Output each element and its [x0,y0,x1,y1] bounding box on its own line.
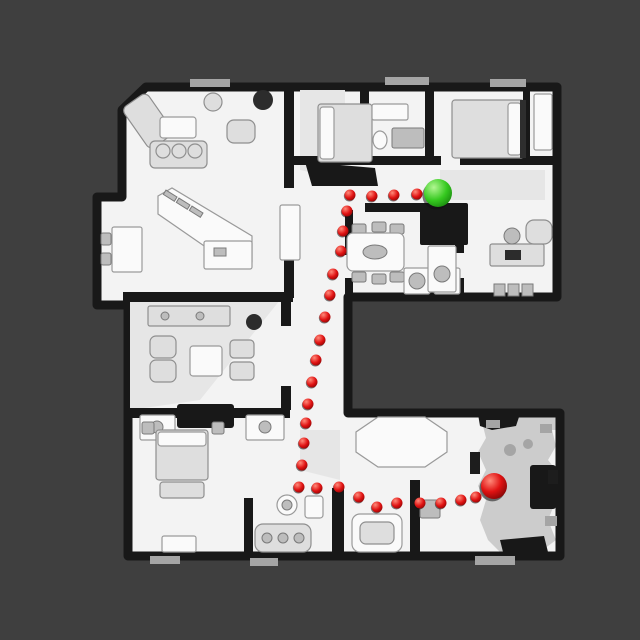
nightstand [212,422,224,434]
dresser [162,536,196,552]
side-table [190,346,222,376]
waypoint-23 [392,498,403,509]
waypoint-24 [415,498,426,509]
centerpiece [363,245,387,259]
waypoint-17 [297,460,308,471]
shower [392,128,424,148]
bedroom-a-furniture [318,104,372,162]
nightstand [142,422,154,434]
waypoint-2 [389,190,400,201]
bed-b-pillows [508,103,521,155]
double-vanity [372,104,408,120]
armchair [150,360,176,382]
toilet [373,131,387,149]
coffee-table [160,117,196,138]
waypoint-1 [412,189,423,200]
chair [101,233,111,245]
goal-marker [481,473,507,499]
start-marker [424,179,452,207]
waypoint-12 [311,355,322,366]
laptop [505,250,521,260]
round-ottoman [204,93,222,111]
waypoint-13 [307,377,318,388]
floorplan-svg [0,0,640,640]
waypoint-5 [342,206,353,217]
kitchen-island [204,241,252,269]
closet [534,94,552,150]
waypoint-26 [456,495,467,506]
waypoint-25 [436,498,447,509]
waypoint-15 [301,418,312,429]
waypoint-27 [471,492,482,503]
desk-chair [504,228,520,244]
waypoint-8 [328,269,339,280]
bathtub-basin [360,522,394,544]
office-armchair [526,220,552,244]
waypoint-9 [325,290,336,301]
armchair [227,120,255,143]
waypoint-10 [320,312,331,323]
ottoman [230,340,254,358]
waypoint-7 [336,246,347,257]
hall-cabinet [280,205,300,260]
bed-a-pillows [320,107,334,159]
ottoman [230,362,254,380]
waypoint-18 [294,482,305,493]
bed-c-pillows [158,432,206,446]
pedestal [305,496,323,518]
waypoint-3 [367,191,378,202]
breakfast-table [112,227,142,272]
scan-viewport[interactable] [0,0,640,640]
island-sink [214,248,226,256]
waypoint-21 [354,492,365,503]
octagon-landing [356,417,447,467]
waypoint-4 [345,190,356,201]
potted-plant [253,90,273,110]
armchair [150,336,176,358]
potted-plant [246,314,262,330]
waypoint-11 [315,335,326,346]
bed-bench [160,482,204,498]
waypoint-22 [372,502,383,513]
waypoint-19 [312,483,323,494]
waypoint-14 [303,399,314,410]
bedroom-b-furniture [452,94,552,158]
waypoint-6 [338,226,349,237]
headboard [520,100,526,158]
waypoint-16 [299,438,310,449]
sideboard [148,306,230,326]
waypoint-20 [334,482,345,493]
chair [101,253,111,265]
